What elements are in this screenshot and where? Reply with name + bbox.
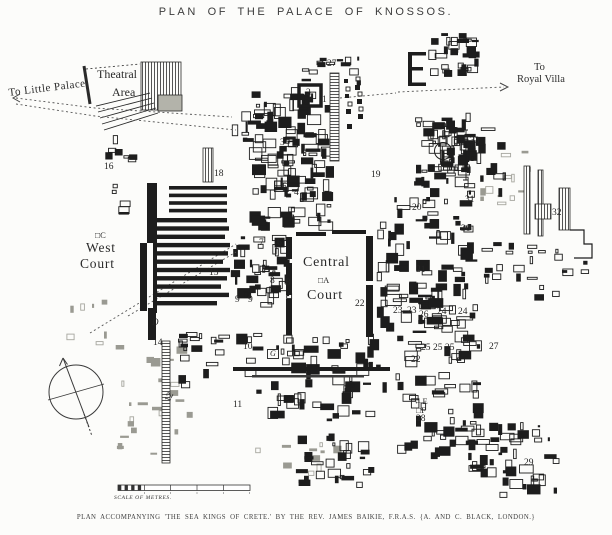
caption: PLAN ACCOMPANYING 'THE SEA KINGS OF CRET… (0, 514, 612, 521)
west-magazines (153, 148, 230, 313)
compass-icon (48, 358, 104, 436)
scale-bar (118, 485, 250, 494)
scanned-plan-page: PLAN OF THE PALACE OF KNOSSOS. (0, 0, 612, 535)
palace-plan-drawing (0, 0, 612, 535)
east-bastions (435, 130, 593, 258)
theatral-area-drawing (84, 62, 182, 130)
central-court-walls (286, 230, 373, 337)
northeast-e-building (408, 52, 426, 86)
